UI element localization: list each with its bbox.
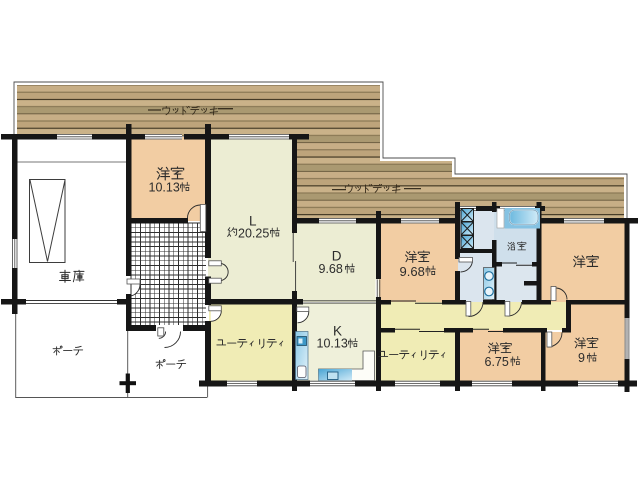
svg-text:6.75: 6.75 xyxy=(485,355,509,369)
svg-text:10.13: 10.13 xyxy=(317,337,348,351)
svg-text:9.68: 9.68 xyxy=(319,262,343,276)
svg-text:20.25: 20.25 xyxy=(238,226,269,240)
svg-text:9: 9 xyxy=(578,351,585,365)
svg-text:10.13: 10.13 xyxy=(149,181,180,195)
svg-text:9.68: 9.68 xyxy=(400,264,425,279)
